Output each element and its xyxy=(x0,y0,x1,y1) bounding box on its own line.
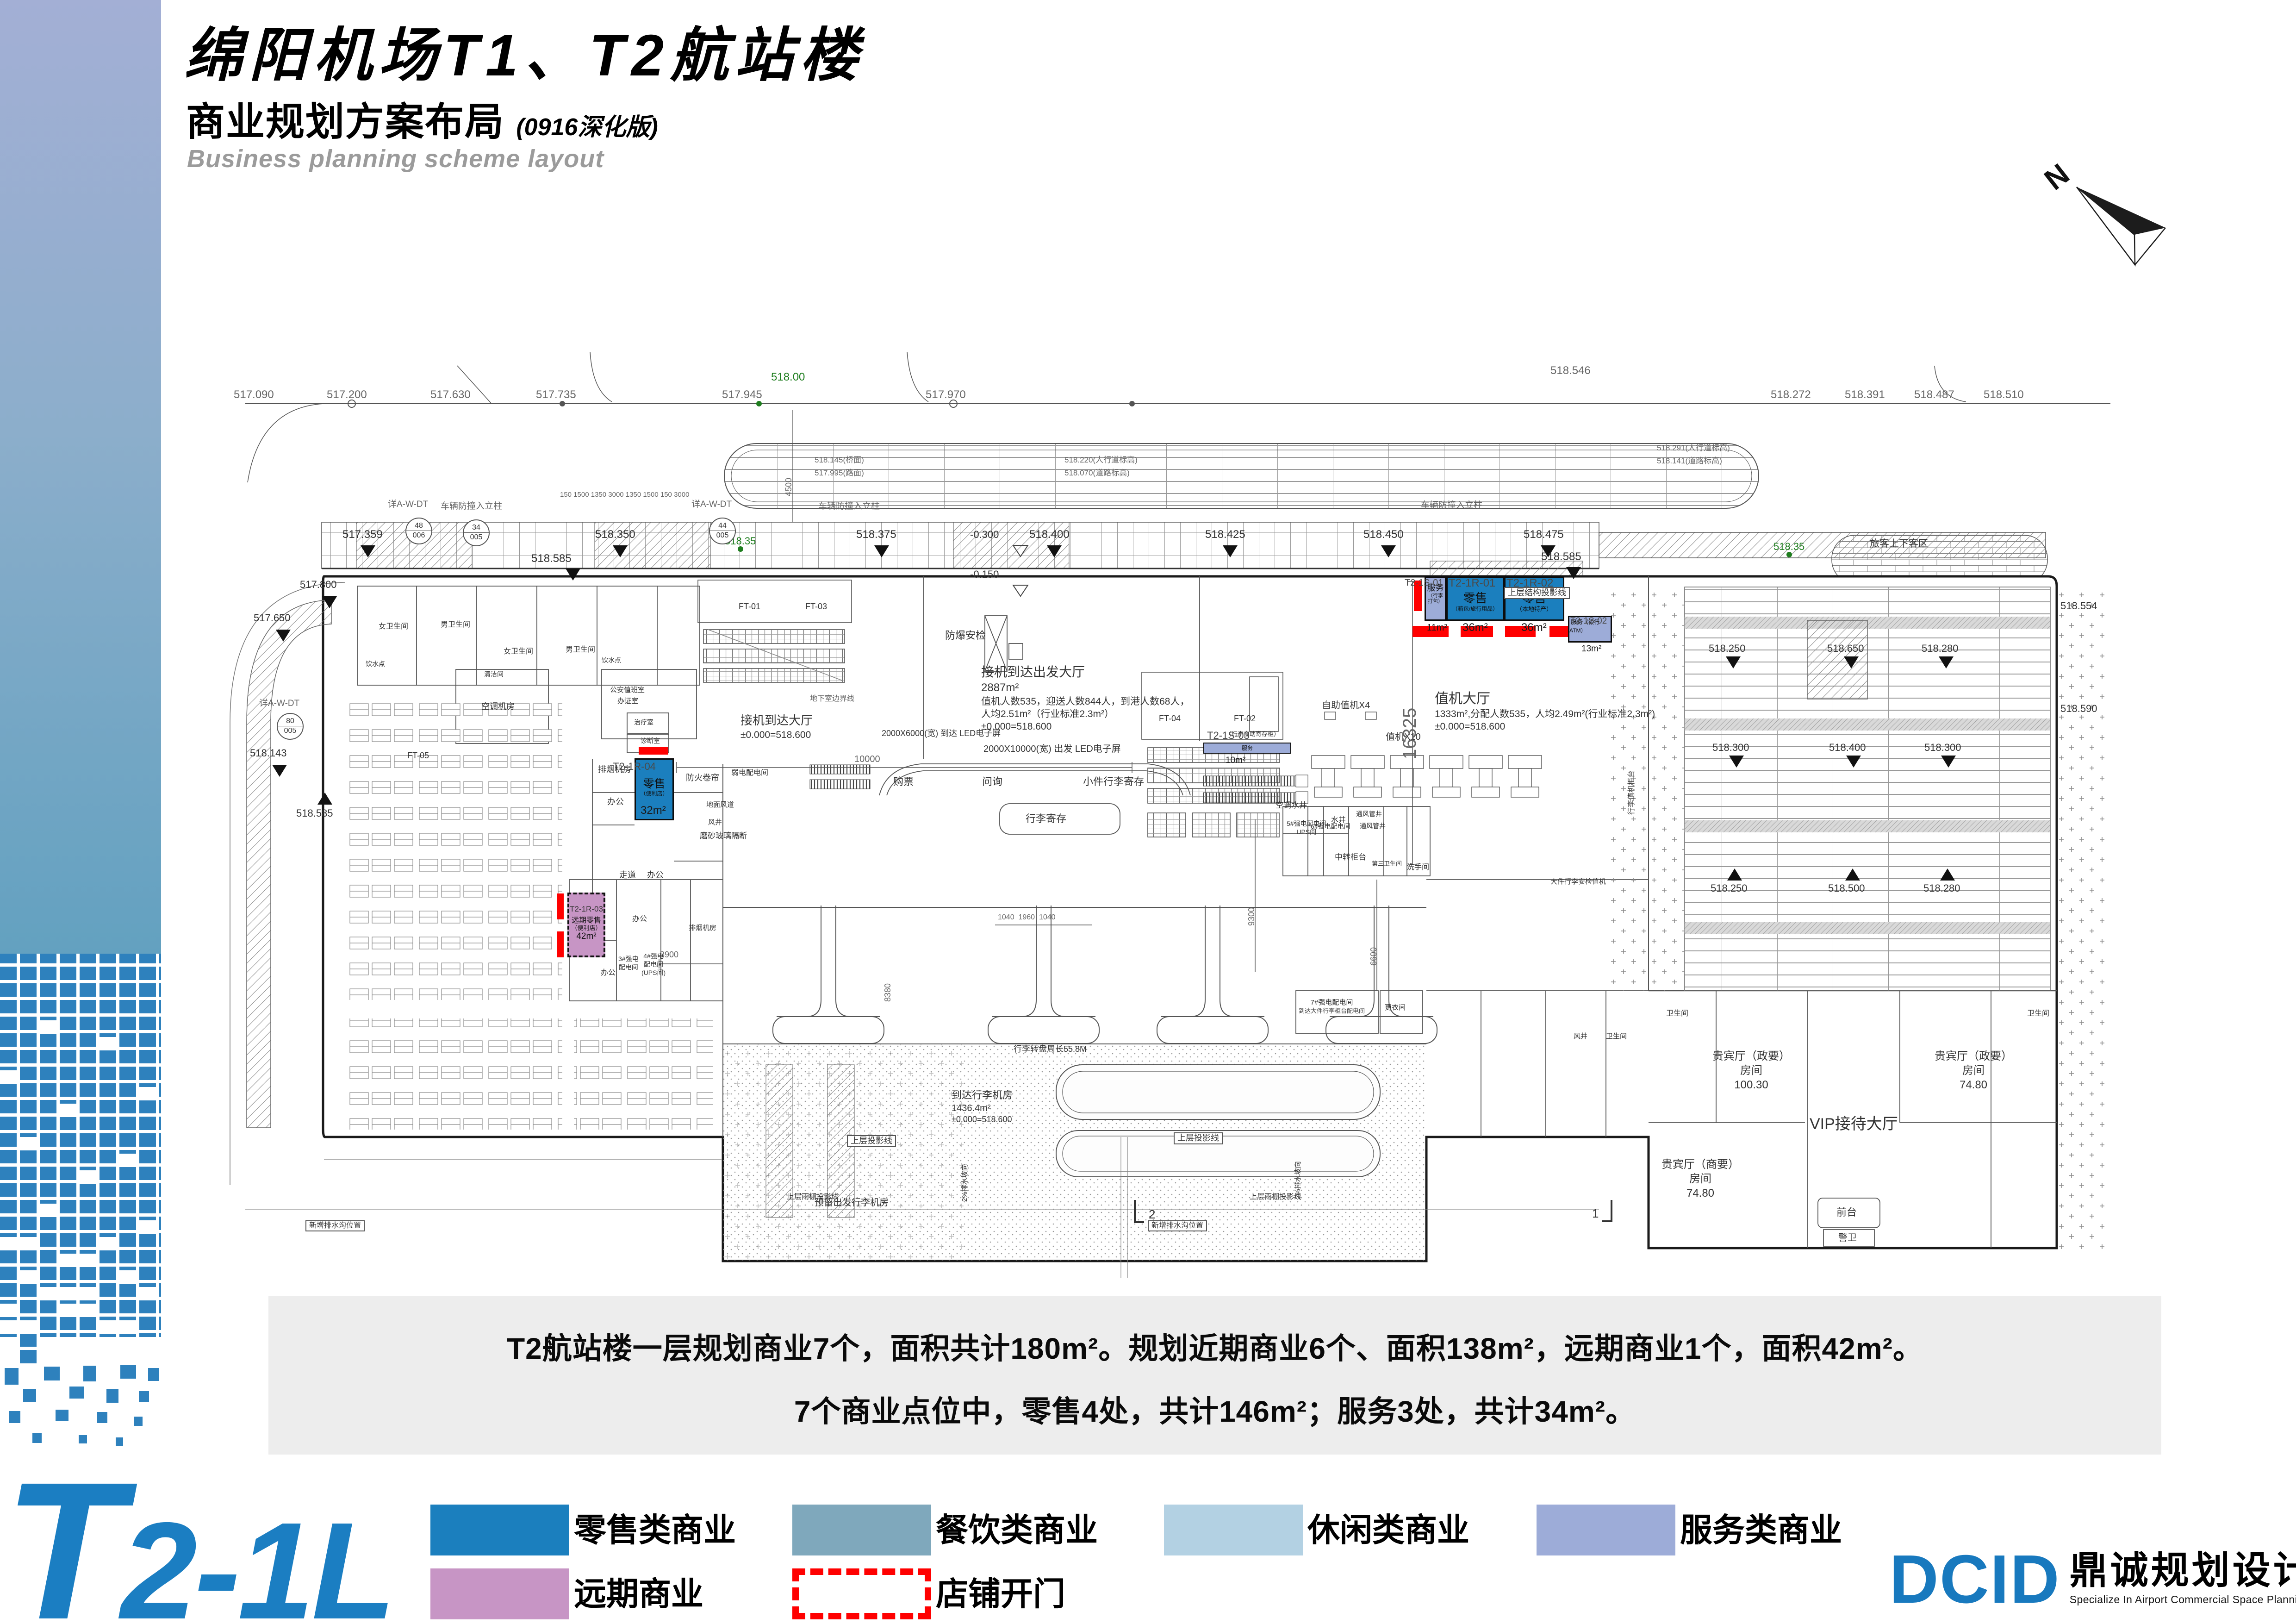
summary-line-2: 7个商业点位中，零售4处，共计146m²；服务3处，共计34m²。 xyxy=(268,1388,2161,1430)
vip-line: 房间 xyxy=(1935,1063,2012,1078)
bubble-top: 34 xyxy=(464,523,489,532)
hall-text-arrival: 接机到达大厅 ±0.000=518.600 xyxy=(740,713,813,741)
elev-label: 517.200 xyxy=(327,388,367,401)
elev-label: 518.070(道路标高) xyxy=(1064,468,1130,478)
unit-T2-1R-04: T2-1R-04 零售 （便利店） 32m² xyxy=(635,758,674,820)
unit-id: T2-1S-01 xyxy=(1405,578,1443,588)
vip-room-label: 贵宾厅（商要） 房间 74.80 xyxy=(1661,1157,1739,1201)
elev-label: 518.546 xyxy=(1550,364,1591,377)
room-label: 公安值班室 xyxy=(610,686,645,694)
hall-text-baggage: 到达行李机房 1436.4m² ±0.000=518.600 xyxy=(952,1089,1013,1125)
room-label: 办公 xyxy=(647,870,664,881)
elev-label: 518.272 xyxy=(1771,388,1811,401)
room-label: 防火卷帘 xyxy=(686,773,719,783)
plan-label: 车辆防撞入立柱 xyxy=(818,501,880,512)
unit-name: 远期零售 xyxy=(569,914,604,925)
elev-label: 518.487 xyxy=(1914,388,1954,401)
elev-label: 518.585 xyxy=(531,552,572,565)
room-label: 空调水井 xyxy=(1276,801,1307,811)
elev-label: -0.150 xyxy=(970,568,999,581)
room-label: 男卫生间 xyxy=(441,620,470,630)
elev-label: 517.650 xyxy=(254,612,291,625)
unit-id: T2-1R-03 xyxy=(569,905,604,914)
company-logo: DCID 鼎诚规划设计 Specialize In Airport Commer… xyxy=(1889,1545,2296,1614)
plan-label: 新增排水沟位置 xyxy=(305,1220,365,1231)
elev-label: 518.35 xyxy=(1773,541,1804,553)
unit-detail: （本地特产） xyxy=(1506,606,1563,612)
legend-swatch-shop-door xyxy=(792,1568,931,1619)
elev-label: 518.400 xyxy=(1829,742,1866,754)
vip-room-label: 贵宾厅（政要） 房间 74.80 xyxy=(1935,1049,2012,1093)
room-label: 防爆安检 xyxy=(945,630,986,642)
logo-dcid-text: DCID xyxy=(1889,1545,2060,1614)
unit-T2-1R-03: T2-1R-03 远期零售 （便利店） 42m² xyxy=(567,893,605,957)
dim-label: 16325 xyxy=(1399,708,1421,759)
room-label: 地面风道 xyxy=(706,801,734,809)
shop-door-dash xyxy=(639,747,668,755)
hall-line: 到达行李机房 xyxy=(952,1089,1013,1102)
elev-label: 518.475 xyxy=(1524,528,1564,541)
legend-label-shop-door: 店铺开门 xyxy=(936,1568,1065,1619)
room-label: 行李寄存 xyxy=(1026,813,1066,825)
room-label: 磨砂玻璃隔断 xyxy=(700,831,747,841)
hall-line: ±0.000=518.600 xyxy=(981,720,1189,733)
room-label: 7#强电配电间到达大件行李柜台配电间 xyxy=(1299,998,1365,1015)
bubble-top: 44 xyxy=(710,521,735,531)
room-label: 警卫 xyxy=(1838,1232,1857,1243)
unit-T2-1S-01: T2-1S-01 服务 （行李打包） 11m² xyxy=(1425,576,1446,621)
plan-label: 车辆防撞入立柱 xyxy=(1421,500,1482,511)
hall-line: ±0.000=518.600 xyxy=(740,729,813,741)
room-label: 购票 xyxy=(893,776,914,788)
summary-box: T2航站楼一层规划商业7个，面积共计180m²。规划近期商业6个、面积138m²… xyxy=(268,1296,2161,1455)
elev-label: -0.300 xyxy=(970,529,999,541)
room-label: 中转柜台 xyxy=(1335,853,1366,862)
baggage-hall xyxy=(723,1044,1426,1261)
room-label: 卫生间 xyxy=(1666,1009,1688,1018)
logo-cn-text: 鼎诚规划设计 xyxy=(2070,1550,2296,1592)
room-label: 水井 xyxy=(1331,816,1346,825)
dim-part: 1040 xyxy=(1039,913,1056,921)
unit-area: 10m² xyxy=(1226,756,1245,766)
elev-label: 518.375 xyxy=(856,528,896,541)
detail-bubble: 34005 xyxy=(463,519,490,546)
room-label: 清洁间 xyxy=(484,670,504,678)
summary-line-1: T2航站楼一层规划商业7个，面积共计180m²。规划近期商业6个、面积138m²… xyxy=(268,1325,2161,1368)
room-label: 第三卫生间 xyxy=(1372,860,1402,868)
elev-label: 518.500 xyxy=(1828,882,1865,895)
room-label: 卫生间 xyxy=(1606,1032,1627,1041)
room-label: 空调机房 xyxy=(481,702,515,712)
room-label: 小件行李寄存 xyxy=(1083,776,1144,788)
room-label: 风井 xyxy=(1574,1032,1587,1041)
elev-label: 518.143 xyxy=(250,747,287,760)
logo-tagline: Specialize In Airport Commercial Space P… xyxy=(2070,1593,2296,1606)
legend-swatch-retail xyxy=(430,1505,569,1555)
room-line: 配电间 xyxy=(641,960,666,968)
room-label: 弱电配电间 xyxy=(731,768,768,778)
dim-label: 4500 xyxy=(784,478,794,496)
hall-line: ±0.000=518.600 xyxy=(952,1114,1013,1125)
room-label: 更衣间 xyxy=(1385,1004,1406,1012)
bubble-top: 48 xyxy=(406,521,431,531)
room-label: FT-01 xyxy=(739,602,760,612)
unit-detail: （箱包/旅行用品） xyxy=(1448,606,1503,612)
plan-label: 上层雨棚投影线 xyxy=(787,1193,839,1202)
unit-detail: （便利店） xyxy=(636,791,672,797)
vip-line: 贵宾厅（政要） xyxy=(1935,1049,2012,1063)
elev-label: 518.280 xyxy=(1922,643,1959,655)
elev-label: 518.00 xyxy=(771,370,805,384)
elev-label: 518.250 xyxy=(1711,882,1748,895)
room-line: (UPS间) xyxy=(641,968,666,977)
room-label: 男卫生间 xyxy=(566,645,595,655)
shop-door-dash xyxy=(557,931,564,957)
elev-label: 517.090 xyxy=(234,388,274,401)
elev-label: 518.141(道路标高) xyxy=(1657,456,1722,466)
unit-name: 零售 xyxy=(636,775,672,791)
elev-label: 518.585 xyxy=(1541,550,1581,563)
detail-bubble: 44005 xyxy=(709,518,736,544)
bubble-bottom: 005 xyxy=(278,726,303,736)
section-label: 1 xyxy=(1592,1206,1599,1221)
unit-detail: （行李打包） xyxy=(1426,593,1445,604)
room-label: 走道 xyxy=(619,870,636,881)
unit-area: 11m² xyxy=(1427,623,1447,633)
plan-label: 上层投影线 xyxy=(1174,1132,1223,1144)
bubble-bottom: 006 xyxy=(406,531,431,540)
room-label: 诊断室 xyxy=(641,737,660,745)
unit-area: 42m² xyxy=(569,931,604,942)
dim-label: 6600 xyxy=(1369,947,1379,966)
hall-text-vip: VIP接待大厅 xyxy=(1810,1115,1898,1134)
detail-bubble: 80005 xyxy=(277,713,304,740)
hall-line: 值机大厅 xyxy=(1435,690,1655,708)
room-label: 排烟机房 xyxy=(689,924,716,932)
legend-label-dining: 餐饮类商业 xyxy=(936,1505,1098,1555)
legend-swatch-service xyxy=(1537,1505,1675,1555)
legend-label-service: 服务类商业 xyxy=(1680,1505,1842,1555)
dim-label: 10000 xyxy=(854,754,880,765)
hall-line: 1436.4m² xyxy=(952,1102,1013,1114)
room-label: FT-05 xyxy=(407,751,429,761)
room-label: 办证室 xyxy=(617,697,638,706)
unit-area: 13m² xyxy=(1581,644,1601,654)
room-label: 通风管井 xyxy=(1356,810,1382,818)
room-line: 到达大件行李柜台配电间 xyxy=(1299,1007,1365,1015)
unit-id: T2-1S-02 xyxy=(1570,616,1607,626)
floor-code-text: T2-1L xyxy=(4,1494,393,1624)
hall-text-checkin: 值机大厅 1333m²,分配人数535，人均2.49m²(行业标准2.3m²) … xyxy=(1435,690,1655,733)
detail-ref-label: 详A-W-DT xyxy=(691,499,732,510)
elev-label: 517.800 xyxy=(300,579,337,591)
dim-part: 1960 xyxy=(1018,913,1035,921)
bubble-top: 80 xyxy=(278,717,303,726)
room-line: 7#强电配电间 xyxy=(1299,998,1365,1007)
room-label: 大件行李安检值机 xyxy=(1550,878,1606,886)
elev-label: 517.945 xyxy=(722,388,762,401)
hall-line: 接机到达大厅 xyxy=(740,713,813,729)
legend-swatch-leisure xyxy=(1164,1505,1303,1555)
unit-area: 32m² xyxy=(641,804,666,817)
floor-code: T2-1L xyxy=(4,1448,393,1624)
elev-label: 517.630 xyxy=(430,388,471,401)
room-label: 3#强电配电间 xyxy=(618,955,639,971)
legend-label-leisure: 休闲类商业 xyxy=(1307,1505,1469,1555)
elev-label: 518.510 xyxy=(1984,388,2024,401)
room-label: 通风管井 xyxy=(1360,822,1386,830)
vip-line: 74.80 xyxy=(1935,1078,2012,1092)
unit-area: 36m² xyxy=(1521,621,1547,634)
dim-label: 1040 1960 1040 xyxy=(998,913,1056,922)
bubble-bottom: 005 xyxy=(464,532,489,542)
room-label: 卫生间 xyxy=(2027,1009,2049,1018)
room-label: 前台 xyxy=(1836,1206,1857,1219)
slide-page: 绵阳机场T1、T2航站楼 商业规划方案布局 (0916深化版) Business… xyxy=(0,0,2296,1624)
elev-label: 518.391 xyxy=(1845,388,1885,401)
hall-line: 接机到达出发大厅 xyxy=(981,664,1189,681)
detail-ref-label: 详A-W-DT xyxy=(259,698,299,709)
plan-label: 上层结构投影线 xyxy=(1504,587,1570,599)
unit-name: 零售 xyxy=(1448,589,1503,606)
room-label: 饮水点 xyxy=(366,660,385,668)
plan-label: 旅客上下客区 xyxy=(1870,538,1928,550)
elev-label: 518.450 xyxy=(1363,528,1404,541)
elev-label: 518.400 xyxy=(1029,528,1070,541)
elev-label: 518.554 xyxy=(2060,600,2097,612)
elev-label: 518.280 xyxy=(1923,882,1960,895)
room-label: 办公 xyxy=(607,797,624,807)
detail-bubble: 48006 xyxy=(405,518,432,544)
legend-swatch-future xyxy=(430,1568,569,1619)
dim-label: 8380 xyxy=(883,983,893,1002)
unit-T2-1S-03: T2-1S-03 服务 10m² xyxy=(1203,743,1291,754)
plan-label: 2%排水坡向 xyxy=(1294,1161,1302,1199)
vip-line: 贵宾厅（商要） xyxy=(1661,1157,1739,1172)
elev-label: 518.300 xyxy=(1712,742,1749,754)
dim-part: 1040 xyxy=(998,913,1014,921)
elev-label: 518.300 xyxy=(1924,742,1961,754)
room-label: 治疗室 xyxy=(634,718,653,726)
elev-label: 518.590 xyxy=(2060,703,2097,715)
room-label: 自助值机X4 xyxy=(1322,700,1370,711)
elev-label: 517.359 xyxy=(342,528,383,541)
elev-label: 518.220(人行道标高) xyxy=(1064,456,1138,465)
room-label: FT-04 xyxy=(1159,714,1181,724)
dim-label: 150 1500 1350 3000 1350 1500 150 3000 xyxy=(560,491,689,499)
unit-T2-1S-02: T2-1S-02 服务（银行ATM） 13m² xyxy=(1568,616,1612,643)
dim-label: 3900 xyxy=(660,950,678,960)
hall-text-arrdep: 接机到达出发大厅 2887m² 值机人数535，迎送人数844人，到港人数68人… xyxy=(981,664,1189,733)
hall-line: 2887m² xyxy=(981,681,1189,695)
elev-label: 518.250 xyxy=(1709,643,1746,655)
unit-detail: （便利店） xyxy=(569,925,604,931)
hall-line: 值机人数535，迎送人数844人，到港人数68人， xyxy=(981,695,1189,708)
elev-label: 517.970 xyxy=(926,388,966,401)
elev-label: 518.350 xyxy=(595,528,635,541)
legend-swatch-dining xyxy=(792,1505,931,1555)
vip-line: 100.30 xyxy=(1712,1078,1790,1092)
plan-label: 车辆防撞入立柱 xyxy=(441,501,502,512)
room-label: 行李值机柜台 xyxy=(1627,770,1636,815)
plan-label: 行李转盘周长55.8M xyxy=(1014,1044,1087,1055)
plan-label: 地下室边界线 xyxy=(810,694,854,704)
vip-line: 74.80 xyxy=(1661,1186,1739,1200)
room-label: 问询 xyxy=(982,776,1002,788)
dim-label: 9300 xyxy=(1247,907,1257,926)
plan-label: 新增排水沟位置 xyxy=(1148,1220,1207,1231)
unit-area: 36m² xyxy=(1462,621,1488,634)
hall-line: 1333m²,分配人数535，人均2.49m²(行业标准2.3m²) xyxy=(1435,708,1655,720)
room-label: 办公 xyxy=(632,915,647,924)
plan-label: 上层投影线 xyxy=(847,1135,896,1147)
legend-label-retail: 零售类商业 xyxy=(574,1505,736,1555)
room-label: 排烟机房 xyxy=(598,765,631,775)
logo-right: 鼎诚规划设计 Specialize In Airport Commercial … xyxy=(2070,1545,2296,1606)
elev-label: 518.585 xyxy=(296,807,333,820)
room-label: 女卫生间 xyxy=(504,647,533,656)
room-label: 洗手间 xyxy=(1407,863,1429,872)
vip-line: 房间 xyxy=(1712,1063,1790,1078)
shop-door-dash xyxy=(557,893,564,919)
room-label: 风井 xyxy=(708,818,722,827)
section-label: 2 xyxy=(1149,1207,1155,1222)
vip-line: 贵宾厅（政要） xyxy=(1712,1049,1790,1063)
elev-label: 518.650 xyxy=(1827,643,1864,655)
plan-label: 2000X6000(宽) 到达 LED电子屏 xyxy=(882,729,1001,739)
unit-id: T2-1R-01 xyxy=(1449,577,1495,590)
plan-label: 2%排水坡向 xyxy=(961,1164,969,1202)
vip-line: 房间 xyxy=(1661,1172,1739,1186)
elev-label: 518.291(人行道标高) xyxy=(1657,443,1730,453)
elev-label: 517.995(路面) xyxy=(815,468,864,478)
hall-line: ±0.000=518.600 xyxy=(1435,720,1655,733)
elev-label: 518.145(桥面) xyxy=(815,456,864,465)
vip-room-label: 贵宾厅（政要） 房间 100.30 xyxy=(1712,1049,1790,1093)
room-label: 饮水点 xyxy=(602,656,621,664)
legend-label-future: 远期商业 xyxy=(574,1568,703,1619)
room-label: 女卫生间 xyxy=(379,622,408,631)
room-label: 办公 xyxy=(601,968,616,978)
unit-name: 服务 xyxy=(1204,743,1290,753)
hall-line: 人均2.51m²（行业标准2.3m²） xyxy=(981,708,1189,720)
unit-T2-1R-01: T2-1R-01 零售 （箱包/旅行用品） 36m² xyxy=(1446,576,1504,621)
elev-label: 518.425 xyxy=(1205,528,1245,541)
room-line: 配电间 xyxy=(618,963,639,971)
elev-label: 517.735 xyxy=(536,388,576,401)
room-label: FT-03 xyxy=(805,602,827,612)
bubble-bottom: 005 xyxy=(710,531,735,540)
room-label: FT-02 xyxy=(1234,714,1256,724)
room-line: 3#强电 xyxy=(618,955,639,963)
unit-detail-t2-1s-03: （行李自助寄存柜） xyxy=(1226,731,1280,738)
detail-ref-label: 详A-W-DT xyxy=(388,499,428,510)
plan-label: 2000X10000(宽) 出发 LED电子屏 xyxy=(983,743,1121,755)
